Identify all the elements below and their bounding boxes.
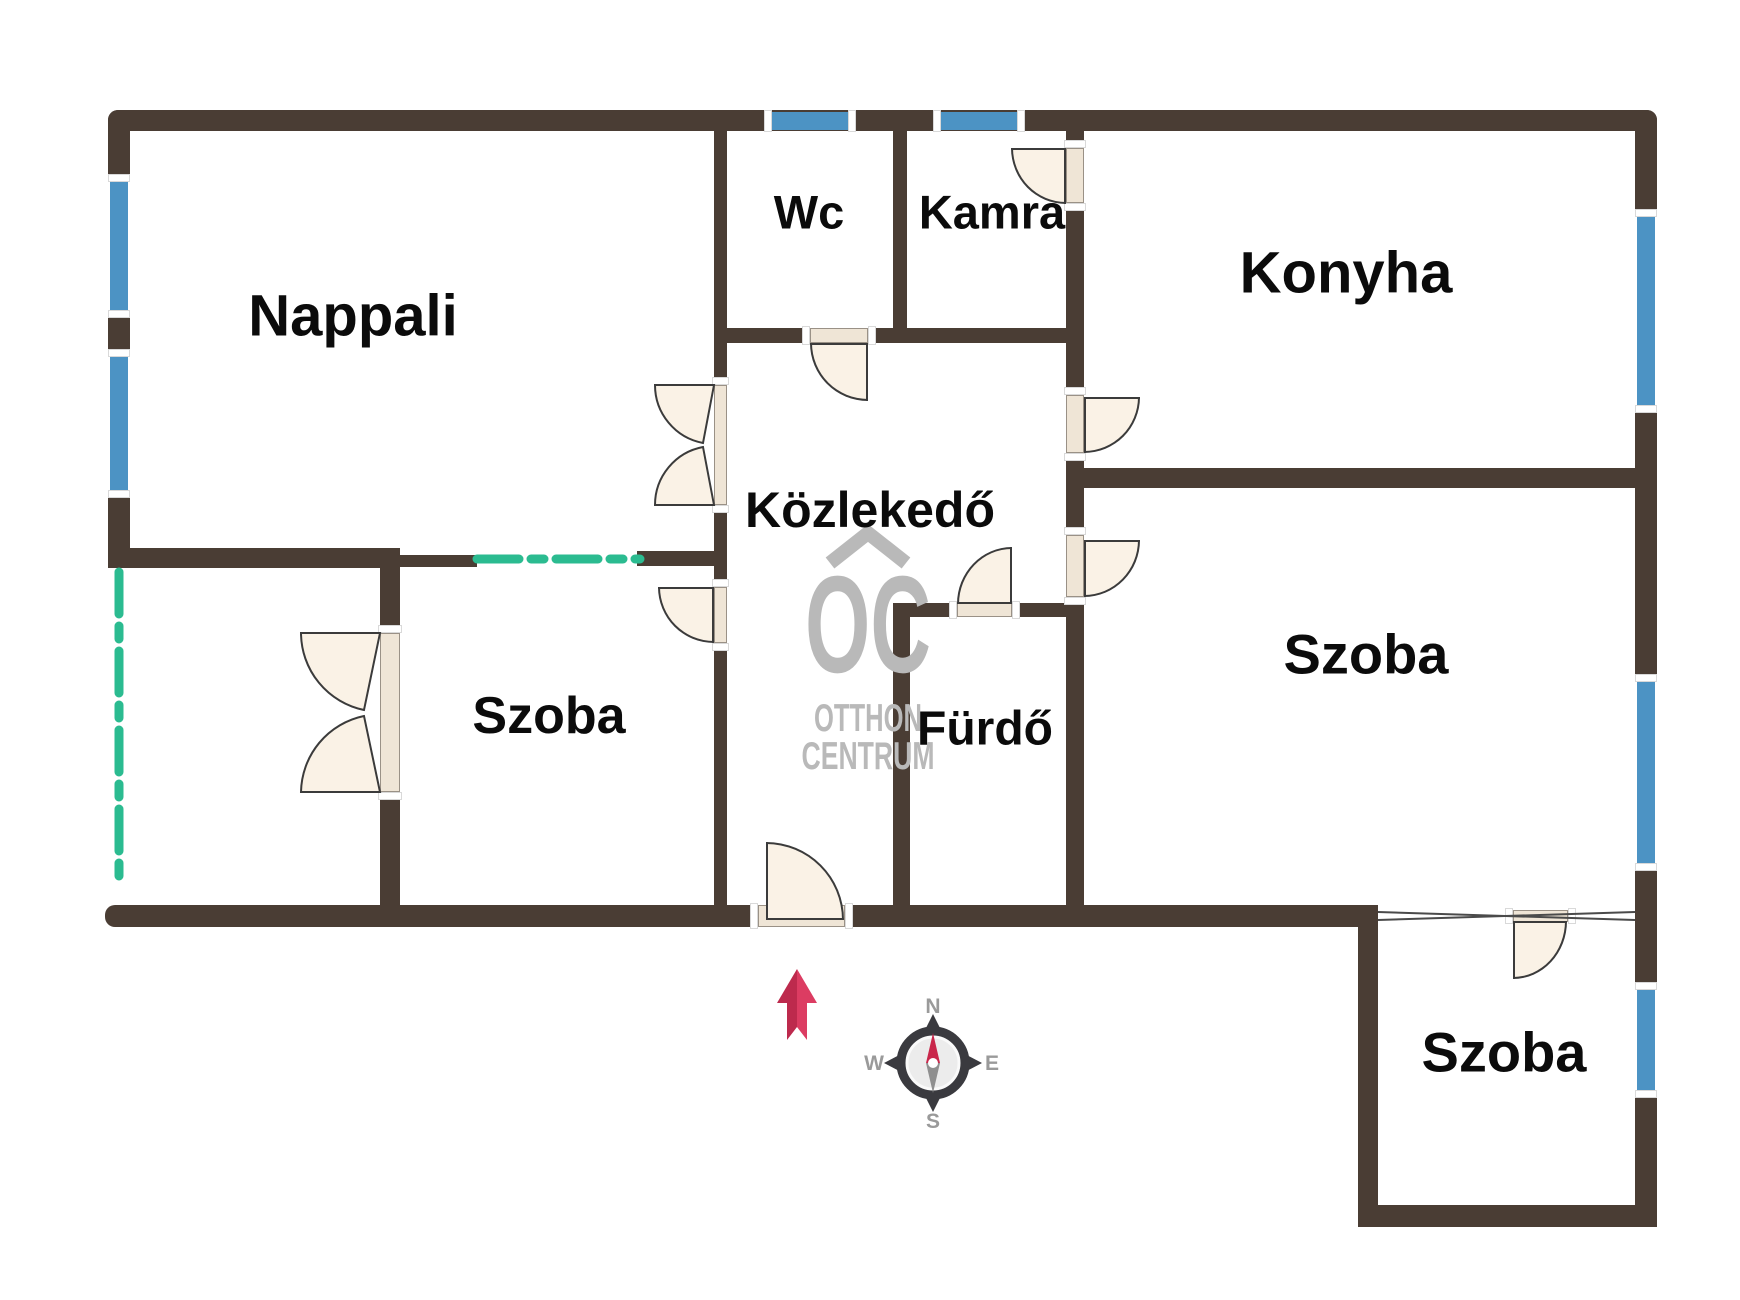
- room-label: Szoba: [1284, 622, 1449, 687]
- wall: [1635, 1090, 1657, 1227]
- jamb-cap: [378, 625, 402, 633]
- window: [772, 112, 848, 130]
- wall: [893, 131, 907, 343]
- window: [1637, 217, 1655, 405]
- jamb-cap: [712, 643, 729, 651]
- jamb-cap: [949, 601, 957, 619]
- jamb-cap: [1635, 405, 1657, 413]
- jamb-cap: [1635, 674, 1657, 682]
- jamb-cap: [802, 326, 810, 345]
- jamb-cap: [933, 110, 941, 132]
- jamb-cap: [848, 110, 856, 132]
- door-entrance: [766, 842, 844, 920]
- wall: [637, 551, 714, 566]
- jamb-cap: [1568, 908, 1576, 924]
- wall: [1066, 453, 1084, 535]
- wall: [1066, 203, 1084, 395]
- jamb-cap: [108, 310, 130, 318]
- jamb-cap: [1635, 1090, 1657, 1098]
- door-threshold: [380, 633, 400, 792]
- wall: [1084, 468, 1657, 488]
- door-konyha: [1084, 397, 1140, 453]
- jamb-cap: [712, 377, 729, 385]
- wall: [380, 568, 400, 633]
- wall: [105, 905, 758, 927]
- wall: [1358, 905, 1378, 1227]
- wall: [108, 548, 400, 568]
- jamb-cap: [1635, 863, 1657, 871]
- door-threshold: [957, 603, 1012, 617]
- wall: [1635, 863, 1657, 990]
- wall: [727, 328, 810, 343]
- door-threshold: [1066, 535, 1084, 597]
- wall: [893, 617, 910, 905]
- jamb-cap: [1064, 597, 1086, 605]
- jamb-cap: [1505, 908, 1513, 924]
- wall: [1635, 405, 1657, 682]
- jamb-cap: [712, 579, 729, 587]
- wall: [714, 505, 727, 587]
- wall: [400, 555, 477, 567]
- door-wc: [810, 343, 868, 401]
- wall: [714, 131, 727, 385]
- room-label: Konyha: [1240, 240, 1453, 307]
- jamb-cap: [108, 349, 130, 357]
- room-label: Szoba: [1422, 1020, 1587, 1085]
- jamb-cap: [1064, 453, 1086, 461]
- jamb-cap: [1064, 387, 1086, 395]
- window: [941, 112, 1017, 130]
- floorplan-geometry: [0, 0, 1740, 1300]
- jamb-cap: [764, 110, 772, 132]
- wall: [868, 328, 1066, 343]
- room-label: Nappali: [248, 283, 458, 350]
- jamb-cap: [712, 505, 729, 513]
- jamb-cap: [1064, 140, 1086, 148]
- jamb-cap: [108, 174, 130, 182]
- door-threshold: [1066, 148, 1084, 203]
- floorplan-canvas: OC OTTHON CENTRUM N S W E NappaliWcKamra…: [0, 0, 1740, 1300]
- wall: [108, 110, 1657, 131]
- window: [1637, 682, 1655, 863]
- door-szoba-bottom: [1513, 921, 1567, 979]
- jamb-cap: [108, 490, 130, 498]
- window: [1637, 990, 1655, 1090]
- room-label: Wc: [774, 185, 845, 240]
- wall: [1066, 597, 1084, 905]
- jamb-cap: [378, 792, 402, 800]
- wall: [714, 643, 727, 905]
- room-label: Fürdő: [917, 702, 1053, 757]
- jamb-cap: [1635, 982, 1657, 990]
- door-furdo: [957, 547, 1012, 604]
- wall: [1012, 603, 1073, 617]
- jamb-cap: [1017, 110, 1025, 132]
- window: [110, 182, 128, 310]
- jamb-cap: [845, 903, 853, 929]
- jamb-cap: [1064, 527, 1086, 535]
- jamb-cap: [868, 326, 876, 345]
- wall: [380, 792, 400, 905]
- room-label: Kamra: [919, 185, 1065, 240]
- jamb-cap: [1635, 209, 1657, 217]
- door-szoba-right: [1084, 540, 1140, 597]
- jamb-cap: [750, 903, 758, 929]
- door-threshold: [810, 328, 868, 343]
- door-threshold: [714, 587, 727, 643]
- room-label: Közlekedő: [745, 481, 995, 539]
- jamb-cap: [1012, 601, 1020, 619]
- wall: [1635, 110, 1657, 217]
- window: [110, 357, 128, 490]
- room-label: Szoba: [472, 686, 625, 746]
- wall: [845, 905, 1378, 927]
- wall: [893, 603, 957, 617]
- jamb-cap: [1064, 203, 1086, 211]
- wall: [108, 110, 130, 182]
- wall: [1358, 1205, 1657, 1227]
- door-szoba-left: [658, 587, 714, 643]
- door-threshold: [1066, 395, 1084, 453]
- door-threshold: [714, 385, 727, 505]
